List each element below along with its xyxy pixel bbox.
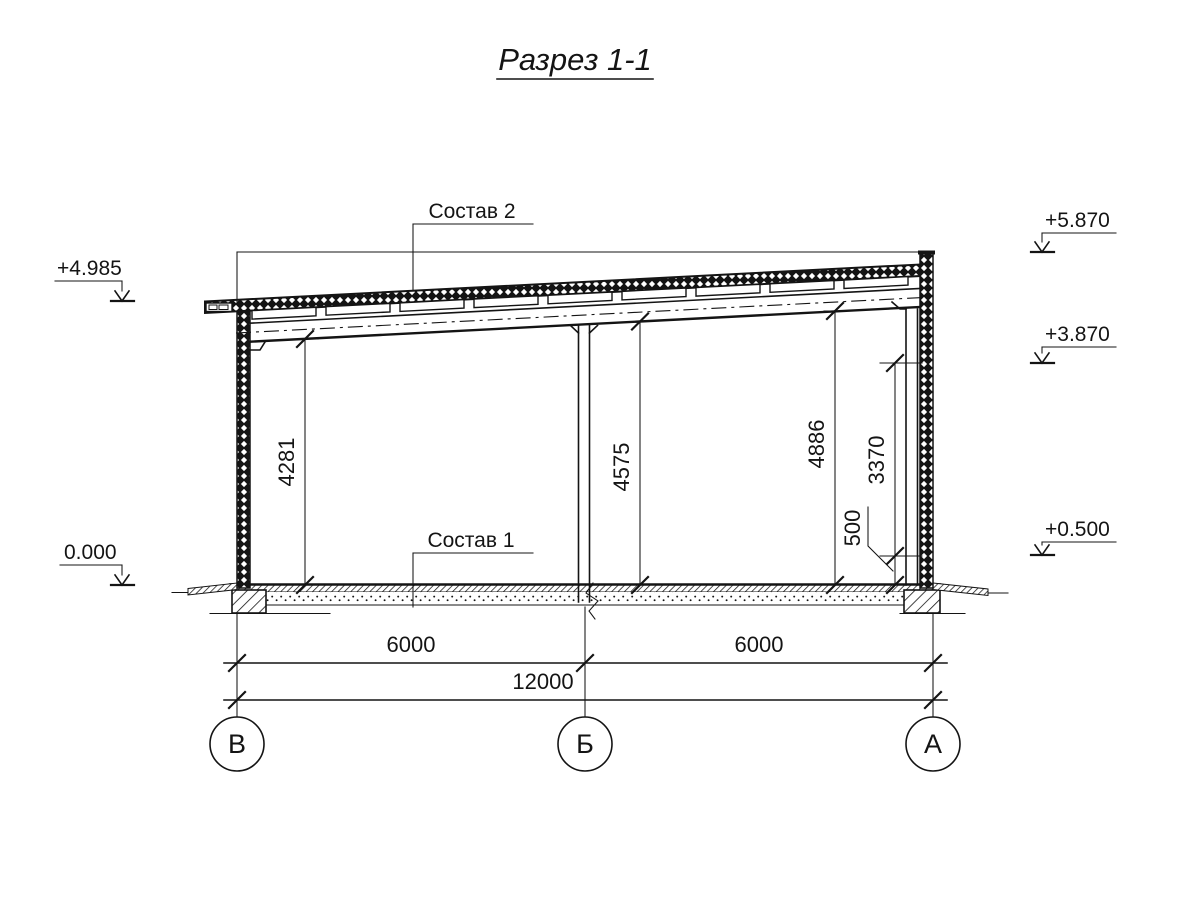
drawing-title: Разрез 1-1 (497, 42, 653, 79)
drawing-sheet: Разрез 1-1 (0, 0, 1200, 900)
elevation-right-mid: +3.870 (1031, 323, 1116, 363)
axis-A-label: А (924, 729, 942, 759)
elevation-left-eave: +4.985 (55, 257, 134, 301)
column-right (906, 309, 918, 585)
dim-3370-500-chain: 3370 500 (840, 355, 922, 593)
elevation-right-plinth: +0.500 (1031, 518, 1116, 555)
dim-6000-right-text: 6000 (735, 632, 784, 657)
elevation-left-eave-text: +4.985 (57, 257, 122, 280)
wall-right (920, 252, 933, 588)
corbel-left (250, 342, 265, 350)
dim-4886: 4886 (804, 303, 848, 593)
dim-3370-text: 3370 (864, 436, 889, 485)
foundation-right (904, 590, 940, 613)
wall-left (237, 310, 250, 588)
callout-roof-text: Состав 2 (428, 200, 515, 223)
dim-4575: 4575 (609, 314, 653, 594)
elevation-parapet-top: +5.870 (1031, 209, 1116, 252)
elevation-right-mid-text: +3.870 (1045, 323, 1110, 346)
vertical-dimensions: 4281 4575 4886 3370 500 (274, 303, 922, 593)
dim-4886-text: 4886 (804, 420, 829, 469)
axis-bubble-A: А (906, 717, 960, 771)
apron-right (933, 583, 988, 596)
elevation-parapet-top-text: +5.870 (1045, 209, 1110, 232)
apron-left (188, 583, 237, 595)
floor-base-layer (237, 592, 933, 605)
axis-V-label: В (228, 729, 246, 759)
title-text: Разрез 1-1 (498, 42, 652, 77)
horizontal-dimensions: 6000 6000 12000 (224, 607, 947, 717)
dim-12000-text: 12000 (512, 669, 573, 694)
callout-floor-text: Состав 1 (427, 529, 514, 552)
axis-bubbles: В Б А (210, 717, 960, 771)
foundation-left (232, 590, 266, 613)
dim-4281: 4281 (274, 331, 318, 593)
dim-4281-text: 4281 (274, 438, 299, 487)
axis-bubble-B: Б (558, 717, 612, 771)
elevation-ground-zero-text: 0.000 (64, 541, 117, 564)
elevation-marks: +4.985 0.000 +5.870 +3.870 (55, 209, 1116, 585)
callout-roof: Состав 2 (413, 200, 533, 291)
elevation-ground-zero: 0.000 (60, 541, 134, 585)
section-drawing: Разрез 1-1 (0, 0, 1200, 900)
axis-bubble-V: В (210, 717, 264, 771)
dim-500-text: 500 (840, 510, 865, 547)
elevation-right-plinth-text: +0.500 (1045, 518, 1110, 541)
roof (205, 265, 933, 351)
dim-4575-text: 4575 (609, 443, 634, 492)
axis-B-label: Б (576, 729, 594, 759)
dim-6000-left-text: 6000 (387, 632, 436, 657)
roof-eave-cap (206, 303, 232, 312)
column-middle (571, 326, 598, 603)
